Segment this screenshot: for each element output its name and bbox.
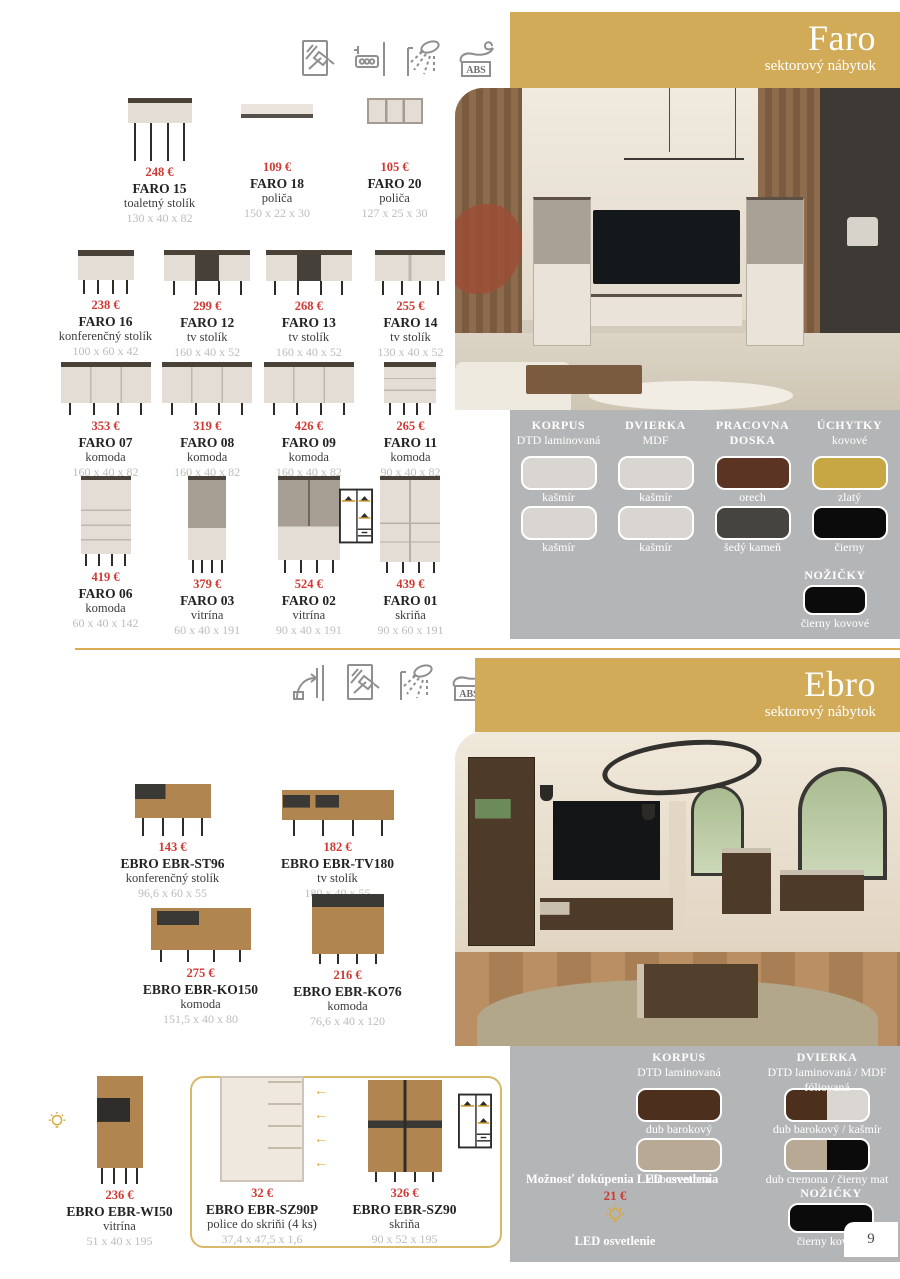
material-swatch: dub barokový [608,1088,750,1136]
product-price: 326 € [347,1186,462,1202]
product-dimensions: 90 x 52 x 195 [347,1232,462,1246]
photo-decor [526,365,642,394]
product-card: 143 € EBRO EBR-ST96 konferenčný stolík 9… [110,770,235,900]
legs-block: NOŽIČKY čierny kovové [790,568,880,630]
photo-decor [780,870,865,911]
furniture-sketch [282,790,394,836]
product-card: 275 € EBRO EBR-KO150 komoda 151,5 x 40 x… [138,894,263,1026]
photo-decor [669,88,670,152]
product-card: 255 € FARO 14 tv stolík 130 x 40 x 52 [363,250,458,356]
product-type: komoda [261,450,356,464]
product-name: EBRO EBR-WI50 [62,1204,177,1220]
material-title: DVIERKA [607,418,704,433]
furniture-sketch [368,1080,442,1182]
material-swatch-label: kašmír [607,490,704,504]
product-name: FARO 13 [261,315,356,331]
product-name: FARO 18 [230,176,325,192]
material-title: ÚCHYTKY [801,418,898,433]
material-swatch-color [812,506,888,540]
furniture-sketch [135,784,211,836]
material-subtitle: MDF [607,433,704,448]
product-image [58,250,153,294]
product-card: 426 € FARO 09 komoda 160 x 40 x 82 [261,362,356,474]
led-light-icon [46,1111,68,1138]
product-price: 143 € [110,840,235,856]
product-price: 353 € [58,419,153,435]
product-dimensions: 90 x 40 x 191 [261,623,356,637]
product-price: 379 € [160,577,255,593]
material-swatch-label: orech [704,490,801,504]
material-swatch-label: šedý kameň [704,540,801,554]
product-type: komoda [160,450,255,464]
product-price: 182 € [275,840,400,856]
furniture-sketch [128,98,192,161]
product-card: 216 € EBRO EBR-KO76 komoda 76,6 x 40 x 1… [285,894,410,1026]
photo-decor [746,197,804,345]
material-swatch: zlatý [801,456,898,504]
product-dimensions: 160 x 40 x 52 [160,345,255,359]
product-card: 248 € FARO 15 toaletný stolík 130 x 40 x… [112,98,207,220]
product-type: vitrína [62,1219,177,1233]
product-image [363,362,458,415]
furniture-sketch [312,894,384,964]
material-column-korpus: KORPUSDTD laminovaná dub barokový dub cr… [608,1050,750,1189]
product-price: 109 € [230,160,325,176]
product-name: FARO 14 [363,315,458,331]
product-price: 524 € [261,577,356,593]
moisture-protection-icon [393,660,439,706]
product-dimensions: 130 x 40 x 52 [363,345,458,359]
material-swatch-color [521,456,597,490]
photo-decor [533,197,591,345]
tempered-glass-icon [341,660,387,706]
wardrobe-layout-icon [458,1093,492,1154]
product-card: 238 € FARO 16 konferenčný stolík 100 x 6… [58,250,153,356]
product-price: 105 € [347,160,442,176]
material-column-pracovna-doska: PRACOVNA DOSKA orech šedý kameň [704,418,801,557]
product-card: 105 € FARO 20 poliča 127 x 25 x 30 [347,98,442,220]
led-option-note: Možnosť dokúpenia LED osvetlenia [526,1172,718,1187]
legs-title: NOŽIČKY [786,1186,876,1201]
section-divider [75,648,900,650]
photo-decor [847,217,878,246]
product-image [110,770,235,836]
product-dimensions: 60 x 40 x 142 [58,616,153,630]
product-dimensions: 90 x 60 x 191 [363,623,458,637]
product-dimensions: 160 x 40 x 52 [261,345,356,359]
ebro-room-photo [455,732,900,1046]
material-swatch: šedý kameň [704,506,801,554]
product-price: 265 € [363,419,458,435]
product-image [363,476,458,573]
material-subtitle: DTD laminovaná [608,1065,750,1080]
faro-section-banner: Faro sektorový nábytok [510,12,900,88]
product-image [261,362,356,415]
product-price: 216 € [285,968,410,984]
material-swatch: orech [704,456,801,504]
product-type: skriňa [363,608,458,622]
abs-label: ABS [466,65,486,76]
product-price: 248 € [112,165,207,181]
product-name: FARO 15 [112,181,207,197]
material-swatch-label: čierny [801,540,898,554]
material-title: DVIERKA [756,1050,898,1065]
material-swatch-color [812,456,888,490]
product-price: 275 € [138,966,263,982]
material-title: PRACOVNA DOSKA [704,418,801,448]
faro-product-row-1: 248 € FARO 15 toaletný stolík 130 x 40 x… [112,98,442,220]
product-name: EBRO EBR-ST96 [110,856,235,872]
product-card: 319 € FARO 08 komoda 160 x 40 x 82 [160,362,255,474]
photo-decor [642,804,655,820]
product-price: 299 € [160,299,255,315]
product-card: 419 € FARO 06 komoda 60 x 40 x 142 [58,476,153,628]
product-name: FARO 09 [261,435,356,451]
material-subtitle: DTD laminovaná [510,433,607,448]
photo-decor [735,88,736,160]
product-name: FARO 20 [347,176,442,192]
material-swatch-label: kašmír [510,540,607,554]
moisture-protection-icon [400,36,446,82]
section-subtitle: sektorový nábytok [475,703,876,721]
material-swatch: čierny [801,506,898,554]
material-swatch-color [715,456,791,490]
ebro-product-row-2: 275 € EBRO EBR-KO150 komoda 151,5 x 40 x… [138,894,410,1026]
product-dimensions: 51 x 40 x 195 [62,1234,177,1248]
product-type: poliča [230,191,325,205]
product-image [285,894,410,964]
tempered-glass-icon [296,36,342,82]
product-type: police do skriňi (4 ks) [205,1217,320,1231]
product-type: komoda [58,450,153,464]
furniture-sketch [241,104,313,156]
product-name: EBRO EBR-KO76 [285,984,410,1000]
furniture-sketch [375,250,445,295]
material-column-uchytky: ÚCHYTKYkovové zlatý čierny [801,418,898,557]
product-card: 268 € FARO 13 tv stolík 160 x 40 x 52 [261,250,356,356]
product-dimensions: 127 x 25 x 30 [347,206,442,220]
product-card: 299 € FARO 12 tv stolík 160 x 40 x 52 [160,250,255,356]
furniture-sketch [61,362,151,415]
ebro-materials-panel: KORPUSDTD laminovaná dub barokový dub cr… [510,1046,900,1262]
product-image [58,362,153,415]
product-price: 236 € [62,1188,177,1204]
product-price: 319 € [160,419,255,435]
product-type: konferenčný stolík [58,329,153,343]
product-card: 439 € FARO 01 skriňa 90 x 60 x 191 [363,476,458,628]
product-price: 419 € [58,570,153,586]
legs-swatch-label: čierny kovové [800,616,870,630]
material-swatch-label: kašmír [510,490,607,504]
product-price: 255 € [363,299,458,315]
photo-decor [540,898,674,929]
product-dimensions: 130 x 40 x 82 [112,211,207,225]
material-swatch-color [618,456,694,490]
material-title: KORPUS [510,418,607,433]
product-name: EBRO EBR-SZ90P [205,1202,320,1218]
material-column-dvierka: DVIERKAMDF kašmír kašmír [607,418,704,557]
product-dimensions: 151,5 x 40 x 80 [138,1012,263,1026]
faro-feature-icons: ABS [296,36,498,82]
product-type: vitrína [261,608,356,622]
photo-decor [593,210,740,284]
wall-mount-icon [348,36,394,82]
product-image [347,1076,462,1182]
ebro-product-row-3: 236 € EBRO EBR-WI50 vitrína 51 x 40 x 19… [62,1076,462,1246]
led-option-price: 21 € [570,1188,660,1204]
product-price: 439 € [363,577,458,593]
furniture-sketch [188,476,226,573]
material-swatch-color [636,1138,722,1172]
product-image [138,894,263,962]
product-name: EBRO EBR-SZ90 [347,1202,462,1218]
photo-decor [798,767,887,880]
material-column-dvierka: DVIERKADTD laminovaná / MDF fóliovaná du… [756,1050,898,1189]
product-type: tv stolík [160,330,255,344]
furniture-sketch [384,362,436,415]
product-type: tv stolík [261,330,356,344]
faro-product-row-2: 238 € FARO 16 konferenčný stolík 100 x 6… [58,250,458,356]
product-image [58,476,153,566]
product-image [261,250,356,295]
wall-fixing-icon [289,660,335,706]
furniture-sketch [266,250,352,295]
product-card: 379 € FARO 03 vitrína 60 x 40 x 191 [160,476,255,628]
product-type: komoda [363,450,458,464]
product-dimensions: 150 x 22 x 30 [230,206,325,220]
ebro-feature-icons: ABS [289,660,491,706]
faro-product-row-4: 419 € FARO 06 komoda 60 x 40 x 142 379 €… [58,476,458,628]
product-type: toaletný stolík [112,196,207,210]
product-type: komoda [285,999,410,1013]
material-title: KORPUS [608,1050,750,1065]
product-card: 182 € EBRO EBR-TV180 tv stolík 180 x 40 … [275,770,400,900]
legs-title: NOŽIČKY [790,568,880,583]
section-title: Faro [510,20,876,57]
product-image [347,98,442,156]
material-swatch: dub cremona / čierny mat [756,1138,898,1186]
product-name: FARO 08 [160,435,255,451]
product-type: skriňa [347,1217,462,1231]
material-swatch-label: zlatý [801,490,898,504]
furniture-sketch [220,1076,304,1182]
product-type: vitrína [160,608,255,622]
product-name: EBRO EBR-KO150 [138,982,263,998]
product-name: FARO 01 [363,593,458,609]
product-dimensions: 100 x 60 x 42 [58,344,153,358]
product-card: 109 € FARO 18 poliča 150 x 22 x 30 [230,98,325,220]
product-card: 236 € EBRO EBR-WI50 vitrína 51 x 40 x 19… [62,1076,177,1246]
material-column-korpus: KORPUSDTD laminovaná kašmír kašmír [510,418,607,557]
furniture-sketch [367,98,423,156]
product-name: FARO 11 [363,435,458,451]
product-dimensions: 76,6 x 40 x 120 [285,1014,410,1028]
product-name: FARO 03 [160,593,255,609]
product-price: 268 € [261,299,356,315]
product-type: tv stolík [363,330,458,344]
led-option-label: LED osvetlenie [550,1234,680,1249]
material-swatch-color [715,506,791,540]
material-swatch-label: dub barokový / kašmír [756,1122,898,1136]
product-name: FARO 16 [58,314,153,330]
material-subtitle: kovové [801,433,898,448]
product-type: komoda [58,601,153,615]
faro-product-row-3: 353 € FARO 07 komoda 160 x 40 x 82 319 €… [58,362,458,474]
ebro-section-banner: Ebro sektorový nábytok [475,658,900,732]
product-type: konferenčný stolík [110,871,235,885]
photo-decor [722,848,771,914]
faro-room-photo [455,88,900,410]
product-image [62,1076,177,1184]
section-subtitle: sektorový nábytok [510,57,876,75]
product-image [160,250,255,295]
product-image [230,98,325,156]
material-swatch-color [636,1088,722,1122]
section-title: Ebro [475,666,876,703]
product-image [363,250,458,295]
furniture-sketch [81,476,131,566]
furniture-sketch [278,476,340,573]
furniture-sketch [264,362,354,415]
product-card: 326 € EBRO EBR-SZ90 skriňa 90 x 52 x 195 [347,1076,462,1246]
photo-decor [468,757,535,945]
product-type: poliča [347,191,442,205]
material-swatch: kašmír [607,456,704,504]
legs-swatch-color [803,585,867,615]
product-price: 32 € [205,1186,320,1202]
product-image [160,362,255,415]
material-swatch-label: dub barokový [608,1122,750,1136]
faro-materials-panel: KORPUSDTD laminovaná kašmír kašmír DVIER… [510,410,900,639]
material-swatch-label: dub cremona / čierny mat [756,1172,898,1186]
material-swatch-color [521,506,597,540]
material-swatch: kašmír [510,456,607,504]
product-dimensions: 37,4 x 47,5 x 1,6 [205,1232,320,1246]
led-light-icon [570,1204,660,1233]
abs-edge-icon: ABS [452,36,498,82]
product-price: 238 € [58,298,153,314]
product-card: 265 € FARO 11 komoda 90 x 40 x 82 [363,362,458,474]
wardrobe-layout-icon [339,488,373,549]
product-name: FARO 12 [160,315,255,331]
product-price: 426 € [261,419,356,435]
furniture-sketch [380,476,440,573]
product-image [112,98,207,161]
furniture-sketch [164,250,250,295]
furniture-sketch [162,362,252,415]
photo-decor [591,294,742,326]
catalog-page: Faro sektorový nábytok ABS [0,0,900,1279]
furniture-sketch [78,250,134,294]
page-number: 9 [844,1222,898,1257]
product-card: 353 € FARO 07 komoda 160 x 40 x 82 [58,362,153,474]
product-type: tv stolík [275,871,400,885]
material-swatch: dub barokový / kašmír [756,1088,898,1136]
product-image [275,770,400,836]
ebro-product-row-1: 143 € EBRO EBR-ST96 konferenčný stolík 9… [110,770,400,900]
product-name: FARO 07 [58,435,153,451]
product-name: EBRO EBR-TV180 [275,856,400,872]
product-type: komoda [138,997,263,1011]
material-swatch-color [618,506,694,540]
photo-decor [637,964,757,1017]
furniture-sketch [151,908,251,962]
photo-decor [624,158,744,160]
product-image [205,1076,320,1182]
furniture-sketch [97,1076,143,1184]
product-dimensions: 60 x 40 x 191 [160,623,255,637]
product-name: FARO 06 [58,586,153,602]
material-swatch: kašmír [510,506,607,554]
material-swatch-label: kašmír [607,540,704,554]
product-card: 32 € EBRO EBR-SZ90P police do skriňi (4 … [205,1076,320,1246]
material-swatch: kašmír [607,506,704,554]
product-image [160,476,255,573]
material-swatch-color [784,1138,870,1172]
material-columns: KORPUSDTD laminovaná kašmír kašmír DVIER… [510,410,900,557]
product-name: FARO 02 [261,593,356,609]
photo-decor [540,785,553,801]
